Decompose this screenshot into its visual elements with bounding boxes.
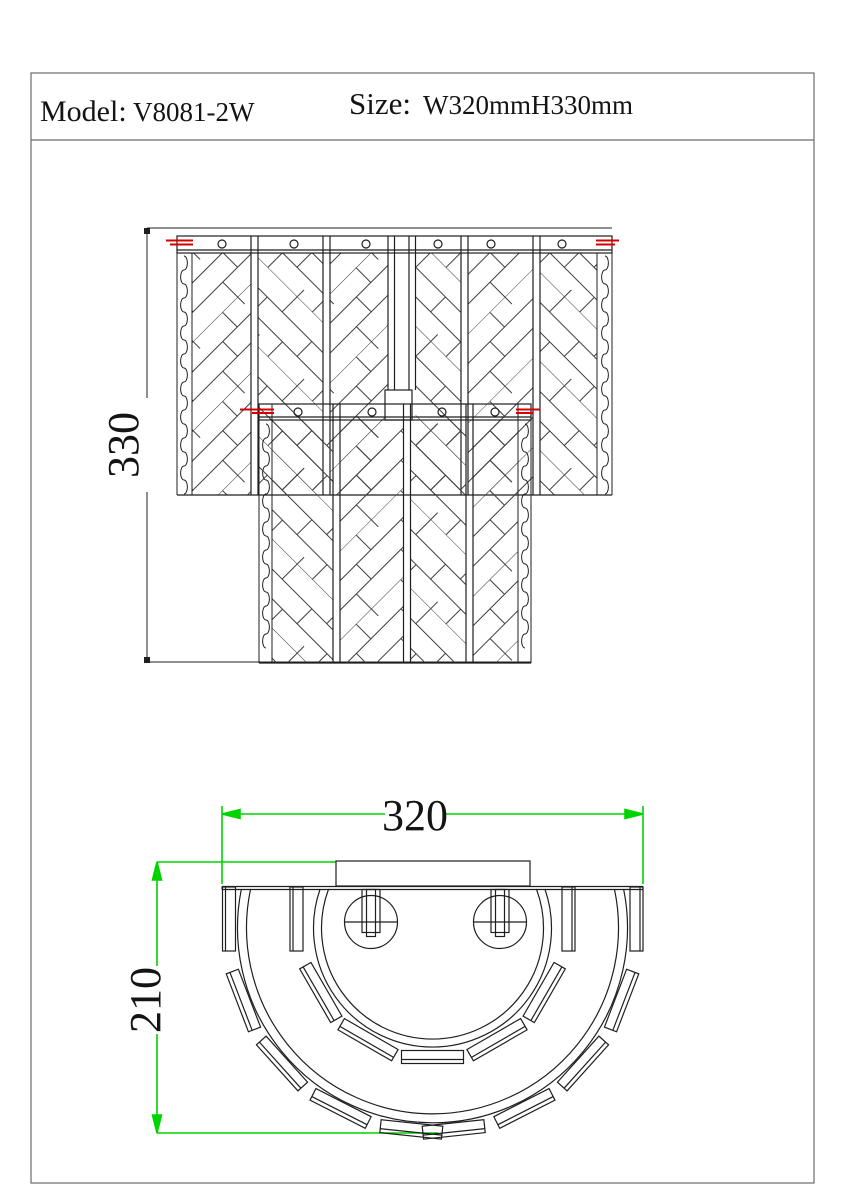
model-value: V8081-2W xyxy=(133,97,255,127)
technical-drawing-canvas: Model: V8081-2W Size: W320mmH330mm 330 xyxy=(0,0,848,1200)
outer-ring-prisms xyxy=(223,887,644,1139)
lamp-socket-left xyxy=(345,890,398,949)
arrow-right xyxy=(625,810,643,819)
height-dim-text: 330 xyxy=(99,412,148,478)
tier2-crystal-panels xyxy=(272,420,518,663)
size-value: W320mmH330mm xyxy=(423,90,633,120)
width-dim-text: 320 xyxy=(382,791,448,840)
wall-bar xyxy=(222,887,643,890)
front-elevation-view: 330 xyxy=(99,228,619,663)
depth-dim-text: 210 xyxy=(121,967,170,1033)
canopy-plate xyxy=(336,861,530,886)
arrow-up xyxy=(153,862,162,880)
outer-frame-ring xyxy=(237,889,627,1123)
size-label: Size: xyxy=(349,86,411,121)
arrow-left xyxy=(222,810,240,819)
model-label: Model: xyxy=(40,95,127,128)
center-connector xyxy=(385,390,412,420)
inner-ring-prisms xyxy=(290,887,575,1064)
bottom-plan-view: 320 210 xyxy=(121,791,643,1139)
drawing-sheet: Model: V8081-2W Size: W320mmH330mm 330 xyxy=(0,0,848,1200)
arrow-down xyxy=(153,1115,162,1133)
lamp-socket-right xyxy=(474,890,527,949)
depth-dimension-210 xyxy=(153,862,439,1133)
inner-frame-ring xyxy=(314,889,552,1047)
